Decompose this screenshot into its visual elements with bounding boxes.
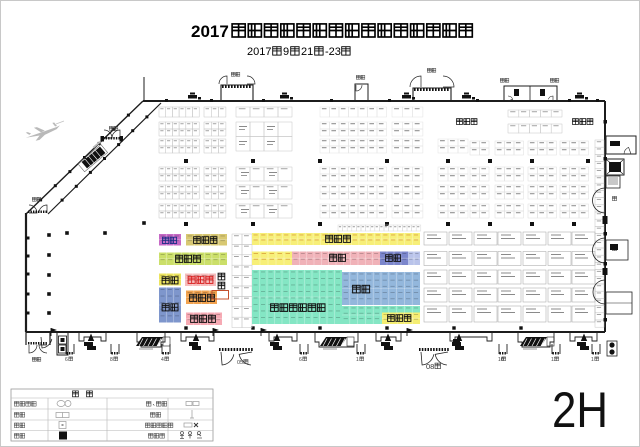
svg-text:21: 21 <box>301 46 313 58</box>
svg-text:08: 08 <box>426 362 434 371</box>
svg-text:1: 1 <box>591 357 594 363</box>
svg-text:9: 9 <box>283 46 289 58</box>
svg-text:6: 6 <box>299 357 302 363</box>
svg-text:6: 6 <box>65 357 68 363</box>
svg-text:8: 8 <box>110 357 113 363</box>
svg-text:2017: 2017 <box>247 46 271 58</box>
svg-text:05: 05 <box>237 360 243 366</box>
svg-text:1: 1 <box>356 357 359 363</box>
svg-text:2017: 2017 <box>191 22 229 41</box>
svg-text:-23: -23 <box>325 46 341 58</box>
svg-text:2H: 2H <box>552 382 608 438</box>
svg-text:4: 4 <box>161 357 164 363</box>
